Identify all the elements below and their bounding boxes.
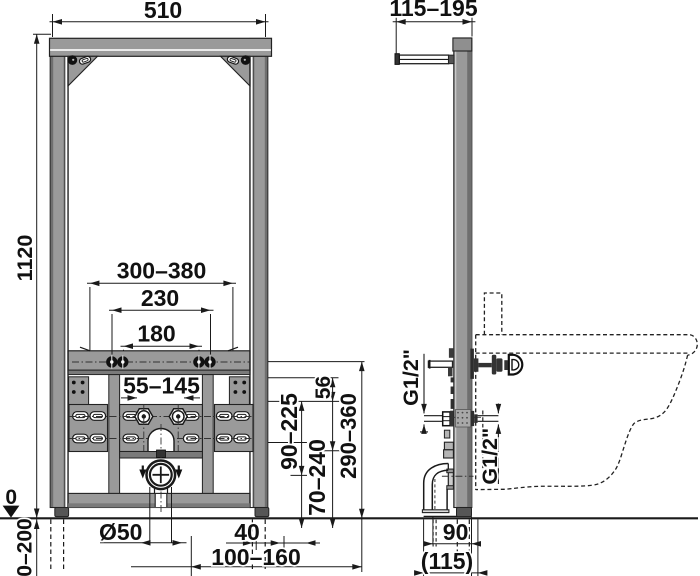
svg-text:0: 0 — [5, 486, 17, 509]
svg-text:1120: 1120 — [13, 235, 37, 282]
svg-text:Ø50: Ø50 — [99, 519, 142, 545]
svg-text:300–380: 300–380 — [117, 257, 207, 283]
svg-text:0–200: 0–200 — [13, 518, 36, 576]
svg-text:180: 180 — [137, 320, 175, 346]
svg-text:90–225: 90–225 — [276, 393, 302, 470]
svg-text:G1/2": G1/2" — [478, 428, 502, 485]
svg-text:115–195: 115–195 — [389, 0, 477, 21]
svg-text:40: 40 — [234, 519, 260, 545]
svg-text:90: 90 — [443, 519, 469, 545]
svg-text:230: 230 — [141, 285, 179, 311]
svg-text:100–160: 100–160 — [211, 544, 301, 570]
svg-text:G1/2": G1/2" — [399, 349, 423, 406]
svg-text:55–145: 55–145 — [123, 372, 200, 398]
svg-text:510: 510 — [144, 0, 182, 23]
svg-text:(115): (115) — [421, 548, 473, 574]
svg-text:56: 56 — [312, 376, 335, 399]
svg-text:70–240: 70–240 — [304, 439, 330, 516]
svg-text:290–360: 290–360 — [336, 393, 361, 479]
